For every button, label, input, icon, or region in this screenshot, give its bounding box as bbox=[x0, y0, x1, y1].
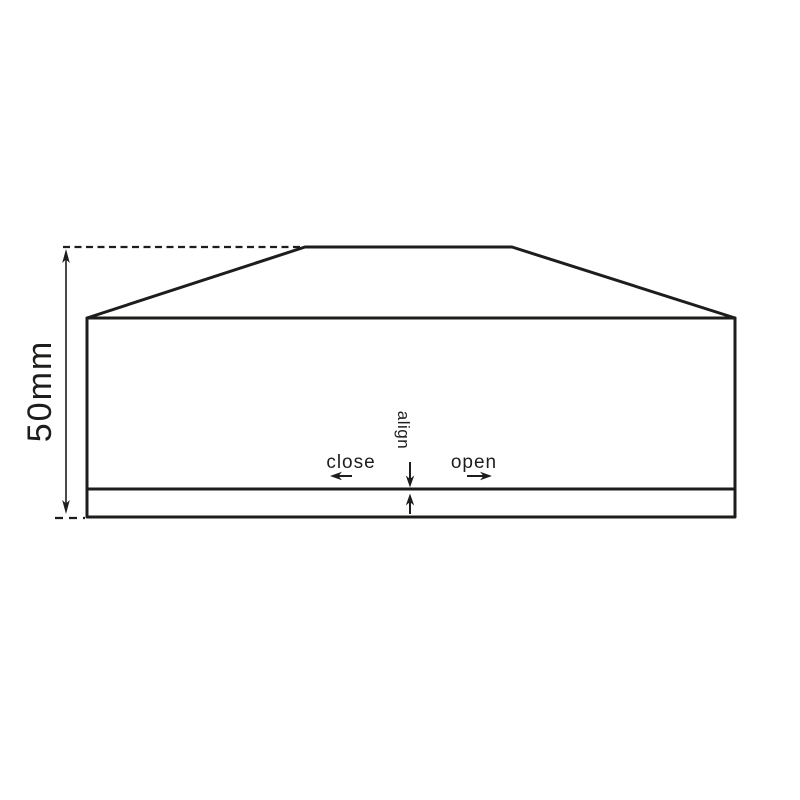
close-label: close bbox=[326, 452, 375, 473]
cap-cross-section-diagram: 50mm close align open bbox=[0, 0, 800, 800]
align-label: align bbox=[394, 411, 413, 449]
height-dimension-line bbox=[62, 249, 70, 514]
cap-roof-slope-outline bbox=[87, 247, 735, 318]
band-alignment-pointer bbox=[406, 494, 414, 515]
technical-drawing-canvas: 50mm close align open bbox=[0, 0, 800, 800]
close-direction-indicator: close bbox=[326, 452, 375, 480]
open-label: open bbox=[451, 452, 497, 473]
align-direction-indicator: align bbox=[394, 411, 414, 488]
open-direction-indicator: open bbox=[451, 452, 497, 480]
dimension-label-50mm: 50mm bbox=[21, 340, 59, 442]
